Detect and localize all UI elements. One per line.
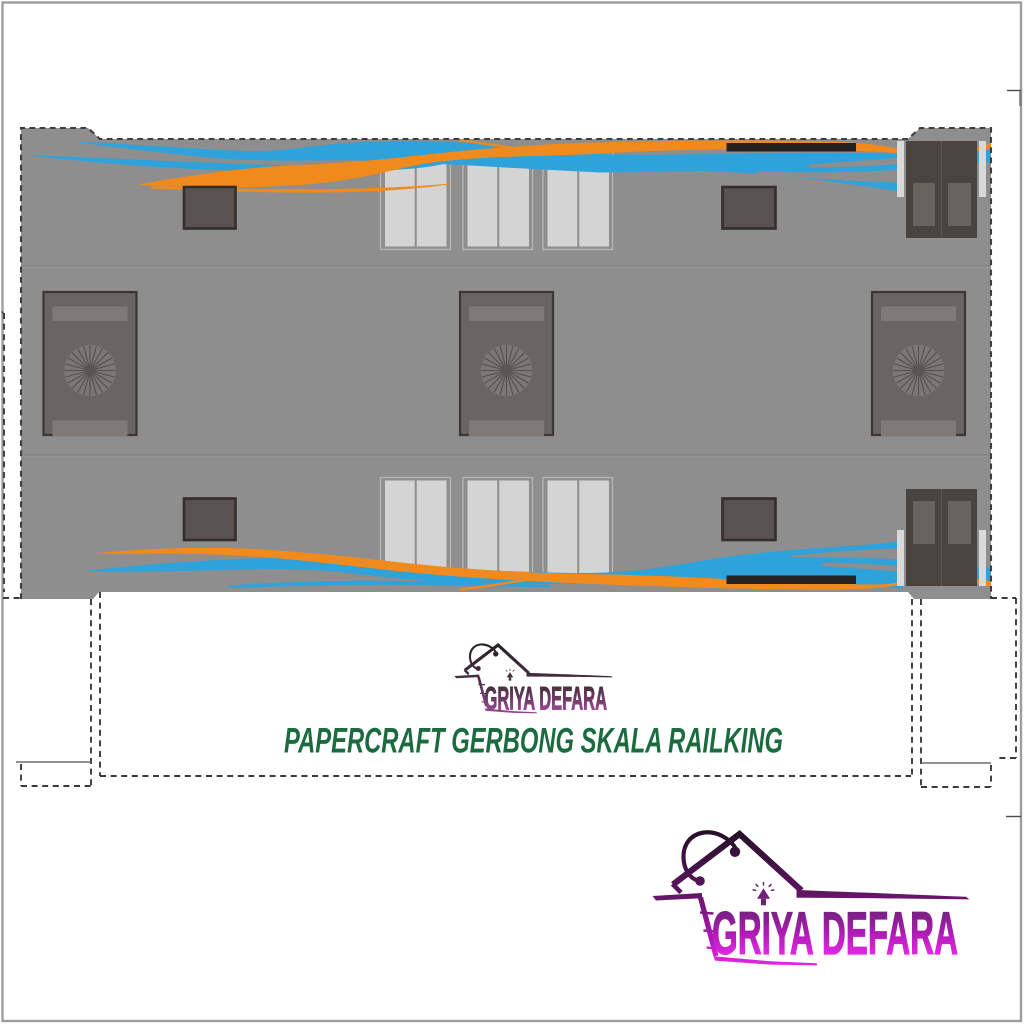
svg-text:PAPERCRAFT GERBONG SKALA RAILK: PAPERCRAFT GERBONG SKALA RAILKING bbox=[284, 722, 783, 761]
svg-text:GRIYA DEFARA: GRIYA DEFARA bbox=[485, 681, 608, 717]
svg-text:GRIYA DEFARA: GRIYA DEFARA bbox=[712, 899, 958, 967]
